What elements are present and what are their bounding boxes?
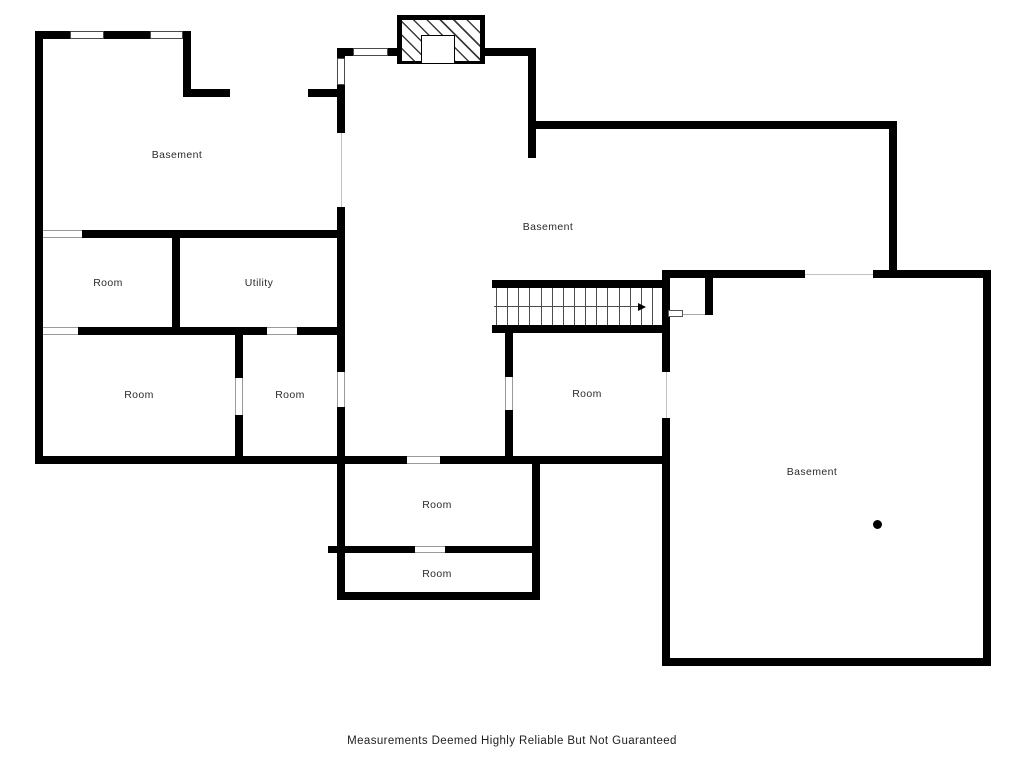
wall [532,464,540,600]
wall [337,407,345,600]
door-threshold-line [683,314,705,315]
door-opening [415,546,445,553]
wall [235,415,243,456]
wall [505,333,513,377]
stair-direction-arrow-icon [638,303,646,311]
room-label: Room [572,388,602,400]
window-opening [70,31,104,39]
wall [889,121,897,278]
wall [337,592,540,600]
wall [662,270,670,372]
wall [528,121,897,129]
floorplan-canvas: Measurements Deemed Highly Reliable But … [0,0,1024,768]
wall [35,456,407,464]
room-label: Basement [523,221,573,233]
wall [172,238,180,334]
stair-tread [652,288,653,325]
wall [388,48,397,56]
disclaimer-text: Measurements Deemed Highly Reliable But … [0,735,1024,747]
wall [183,89,230,97]
wall [485,48,528,56]
room-label: Room [93,277,123,289]
door-opening [43,327,78,335]
wall [440,456,670,464]
line-opening [662,372,670,418]
wall [235,335,243,378]
room-label: Room [422,499,452,511]
room-label: Room [124,389,154,401]
wall [528,48,536,158]
door-opening [505,377,513,410]
wall [492,280,662,288]
wall [662,658,991,666]
column-dot [873,520,882,529]
door-opening [267,327,297,335]
room-label: Room [275,389,305,401]
wall [873,270,991,278]
window-opening [150,31,183,39]
wall [445,546,532,553]
room-label: Room [422,568,452,580]
room-label: Utility [245,277,273,289]
wall [35,31,43,464]
door-opening [43,230,82,238]
wall [82,230,345,238]
wall [297,327,345,335]
wall [78,327,267,335]
window-opening [337,58,345,85]
line-opening [337,133,345,207]
room-label: Basement [152,149,202,161]
door-opening [337,372,345,407]
stair-direction-line [494,306,638,307]
wall [662,270,805,278]
wall [337,48,353,56]
room-label: Basement [787,466,837,478]
line-opening [805,270,873,278]
door-leaf [668,310,683,317]
door-opening [407,456,440,464]
wall [983,270,991,666]
wall [328,546,337,553]
wall [183,31,191,97]
wall [705,278,713,315]
wall [492,325,670,333]
window-opening [353,48,388,56]
wall [337,85,345,133]
wall [104,31,150,39]
fireplace-firebox [421,35,455,63]
door-opening [235,378,243,415]
wall [345,546,415,553]
